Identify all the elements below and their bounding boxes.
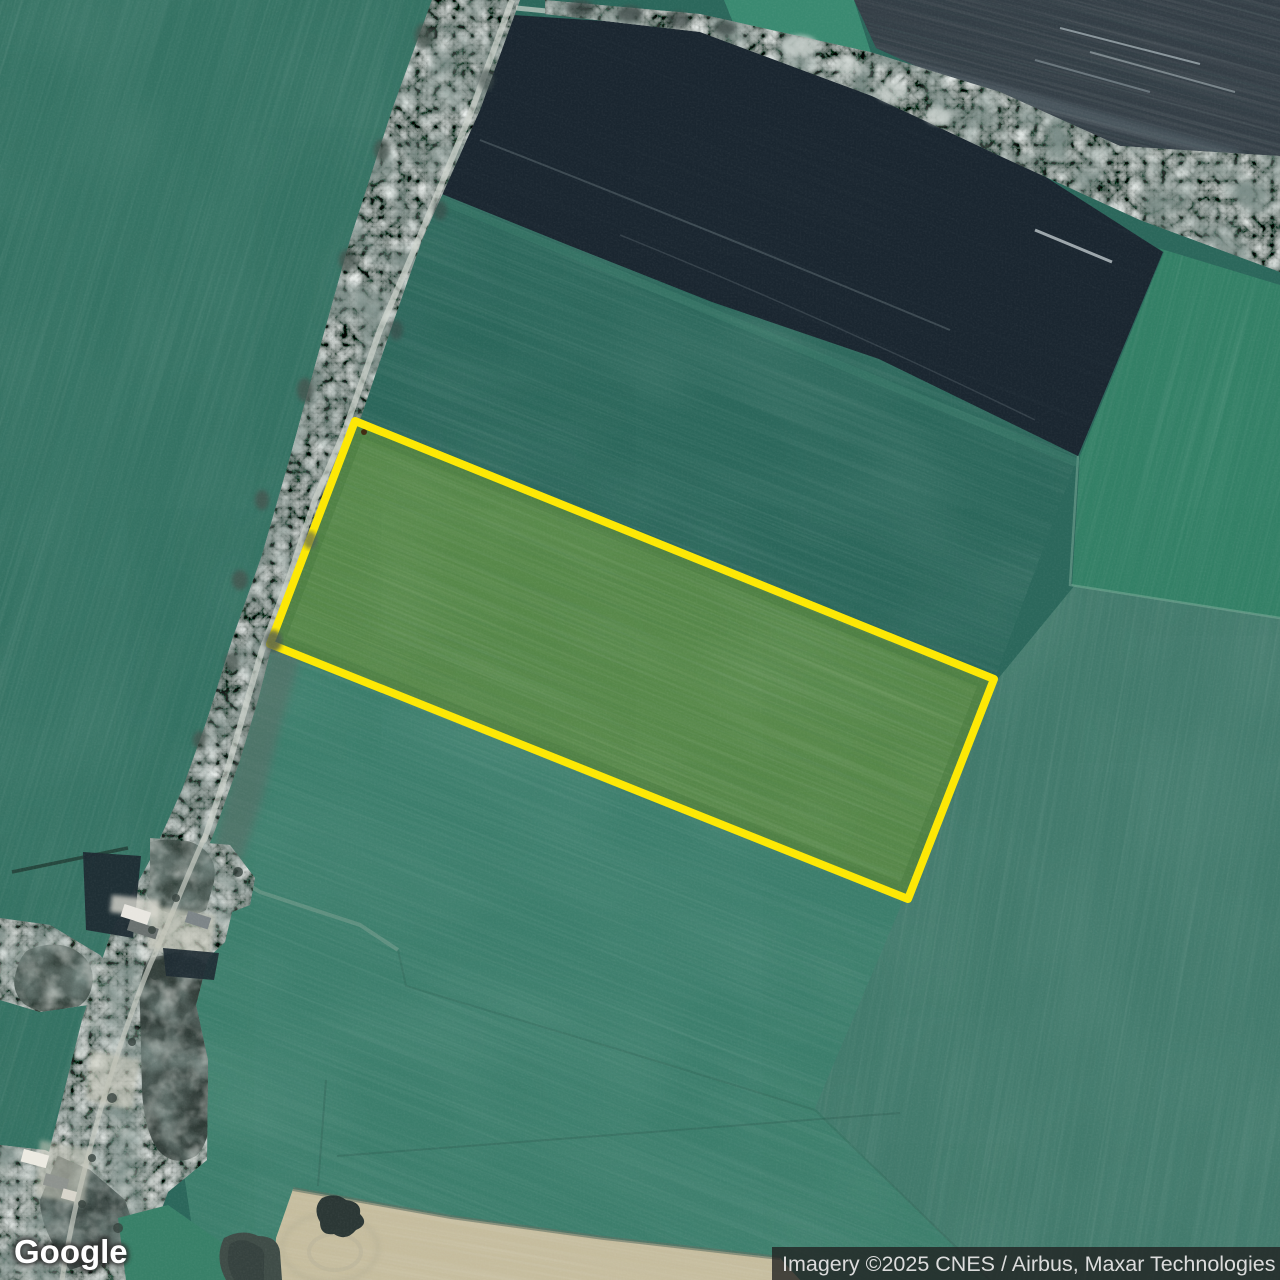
svg-text:Imagery ©2025 CNES / Airbus, M: Imagery ©2025 CNES / Airbus, Maxar Techn… bbox=[782, 1252, 1275, 1276]
svg-text:Google: Google bbox=[14, 1233, 128, 1270]
